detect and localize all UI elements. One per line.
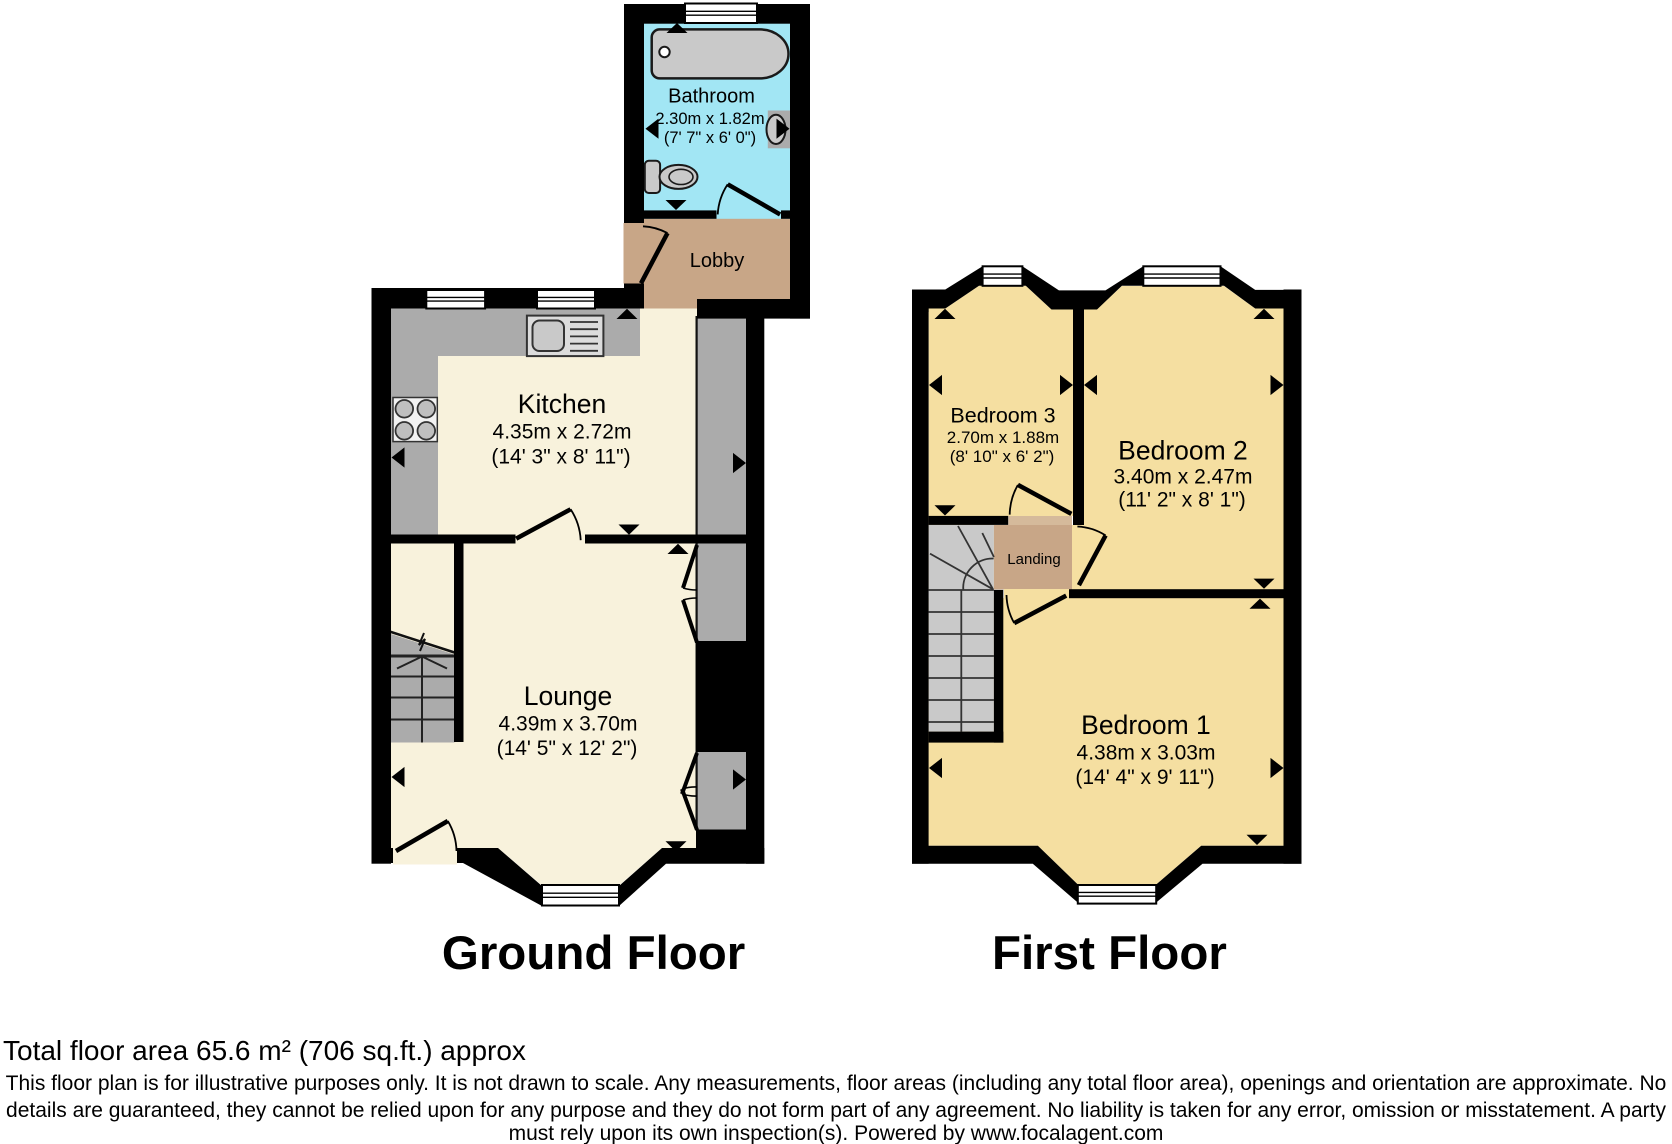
svg-text:Ground Floor: Ground Floor — [442, 927, 745, 980]
svg-text:4.35m x 2.72m: 4.35m x 2.72m — [493, 421, 632, 444]
svg-text:must rely upon its own inspect: must rely upon its own inspection(s). Po… — [509, 1122, 1164, 1144]
svg-text:2.30m x 1.82m: 2.30m x 1.82m — [655, 110, 764, 128]
svg-text:(14' 5" x 12' 2"): (14' 5" x 12' 2") — [497, 737, 638, 760]
svg-text:3.40m x 2.47m: 3.40m x 2.47m — [1114, 465, 1253, 488]
svg-text:Landing: Landing — [1007, 551, 1060, 568]
svg-text:(8' 10" x 6' 2"): (8' 10" x 6' 2") — [950, 447, 1055, 466]
svg-text:Total floor area 65.6 m² (706: Total floor area 65.6 m² (706 sq.ft.) ap… — [3, 1035, 526, 1066]
svg-text:(7' 7" x 6' 0"): (7' 7" x 6' 0") — [664, 129, 756, 147]
svg-text:Kitchen: Kitchen — [518, 389, 606, 419]
svg-text:2.70m x 1.88m: 2.70m x 1.88m — [947, 428, 1059, 447]
svg-text:Bedroom 2: Bedroom 2 — [1118, 436, 1248, 466]
svg-text:4.38m x 3.03m: 4.38m x 3.03m — [1077, 742, 1216, 765]
svg-text:Lounge: Lounge — [524, 681, 612, 711]
svg-text:Bedroom 1: Bedroom 1 — [1081, 710, 1211, 740]
svg-text:Lobby: Lobby — [690, 250, 745, 272]
svg-text:4.39m x 3.70m: 4.39m x 3.70m — [499, 713, 638, 736]
svg-text:Bathroom: Bathroom — [668, 86, 755, 108]
svg-text:(11' 2" x 8' 1"): (11' 2" x 8' 1") — [1118, 489, 1246, 512]
svg-text:Bedroom 3: Bedroom 3 — [950, 403, 1055, 427]
svg-text:(14' 4" x 9' 11"): (14' 4" x 9' 11") — [1075, 766, 1214, 789]
svg-text:(14' 3" x 8' 11"): (14' 3" x 8' 11") — [491, 445, 630, 468]
svg-text:This floor plan is for illustr: This floor plan is for illustrative purp… — [6, 1072, 1667, 1095]
svg-text:details are guaranteed, they c: details are guaranteed, they cannot be r… — [6, 1099, 1666, 1122]
svg-text:First Floor: First Floor — [992, 927, 1227, 980]
